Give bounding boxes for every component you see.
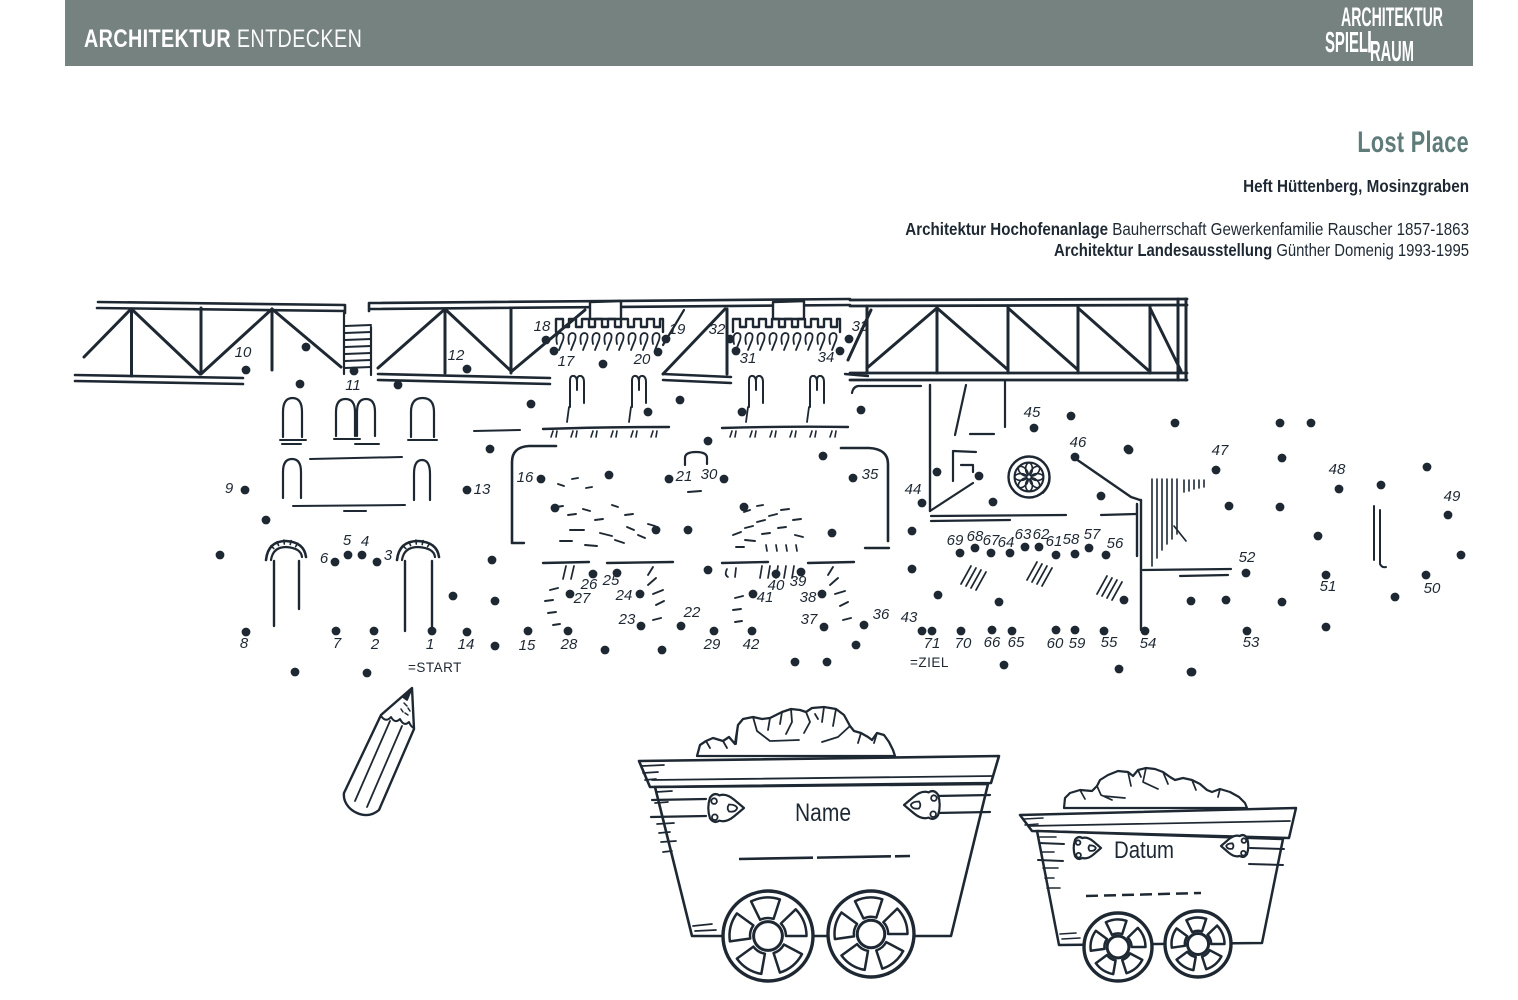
svg-text:Datum: Datum — [1114, 837, 1174, 864]
svg-text:Name: Name — [795, 799, 851, 827]
